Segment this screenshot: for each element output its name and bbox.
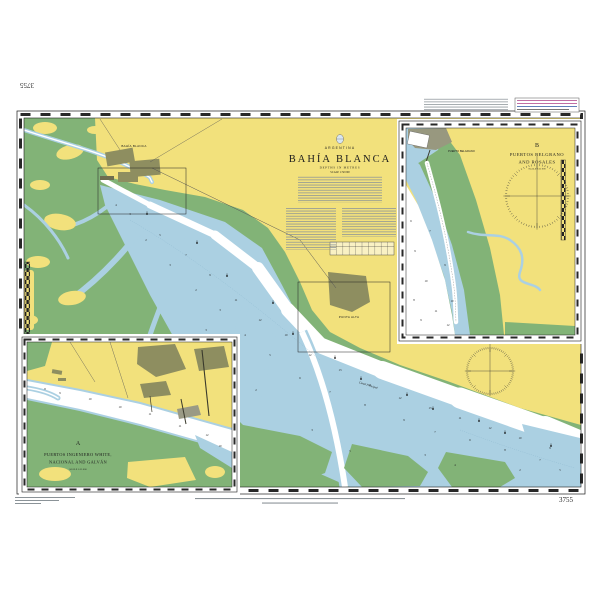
inset-b-title-2: AND ROSALES xyxy=(518,160,555,165)
notes-column-left xyxy=(286,208,336,250)
svg-text:12: 12 xyxy=(489,426,493,430)
svg-text:13: 13 xyxy=(339,368,343,372)
label-bahia-blanca-city: BAHÍA BLANCA xyxy=(121,144,146,148)
svg-text:12: 12 xyxy=(309,353,313,357)
inset-b-scale: SCALE 1:25 000 xyxy=(528,168,546,171)
inset-a-letter: A xyxy=(76,441,81,447)
chart-notes-block xyxy=(298,176,382,203)
tidal-table xyxy=(330,242,394,255)
inset-a-map: 91010111112810 xyxy=(27,342,232,487)
svg-text:13: 13 xyxy=(429,406,433,410)
svg-text:11: 11 xyxy=(435,309,438,313)
chart-depths-note: DEPTHS IN METRES xyxy=(320,166,361,170)
chart-title: BAHÍA BLANCA xyxy=(289,153,391,165)
latitude-scale-bar xyxy=(25,262,30,334)
bottom-margin-notes xyxy=(15,497,405,504)
nautical-chart-page: 3579111210121311121311121095786798765432… xyxy=(0,0,600,600)
label-punta-alta: PUNTA ALTA xyxy=(339,315,360,319)
svg-text:11: 11 xyxy=(235,298,238,302)
inset-a-scale: SCALE 1:25 000 xyxy=(69,468,87,471)
chart-country: ARGENTINA xyxy=(325,146,356,150)
label-puerto-belgrano: PUERTO BELGRANO xyxy=(448,149,475,153)
inset-a-title-2: NACIONAL AND GALVÁN xyxy=(49,460,108,465)
svg-text:11: 11 xyxy=(179,424,182,428)
svg-text:12: 12 xyxy=(206,433,210,437)
svg-text:10: 10 xyxy=(89,397,93,401)
top-margin-notes xyxy=(424,98,579,112)
bahia-blanca-chart: 3579111210121311121311121095786798765432… xyxy=(0,0,600,600)
warning-note-box xyxy=(515,98,579,112)
svg-text:12: 12 xyxy=(399,396,403,400)
svg-text:10: 10 xyxy=(451,299,455,303)
svg-text:10: 10 xyxy=(219,444,223,448)
inset-b-scale-bar xyxy=(561,160,565,240)
inset-b-letter: B xyxy=(535,143,539,149)
svg-text:11: 11 xyxy=(149,412,152,416)
svg-text:10: 10 xyxy=(425,279,429,283)
svg-text:10: 10 xyxy=(285,333,289,337)
chart-scale-note: SCALE 1:50 000 xyxy=(330,171,350,174)
svg-text:10: 10 xyxy=(519,436,523,440)
svg-text:12: 12 xyxy=(447,323,451,327)
svg-text:12: 12 xyxy=(259,318,263,322)
source-note-block xyxy=(424,98,508,111)
svg-text:11: 11 xyxy=(459,416,462,420)
svg-text:10: 10 xyxy=(119,405,123,409)
inset-b-title-1: PUERTOS BELGRANO xyxy=(510,152,564,157)
chart-number-top-left: 3755 xyxy=(20,81,35,89)
notes-column-right xyxy=(342,207,396,237)
chart-number-bottom-right: 3755 xyxy=(559,496,574,504)
